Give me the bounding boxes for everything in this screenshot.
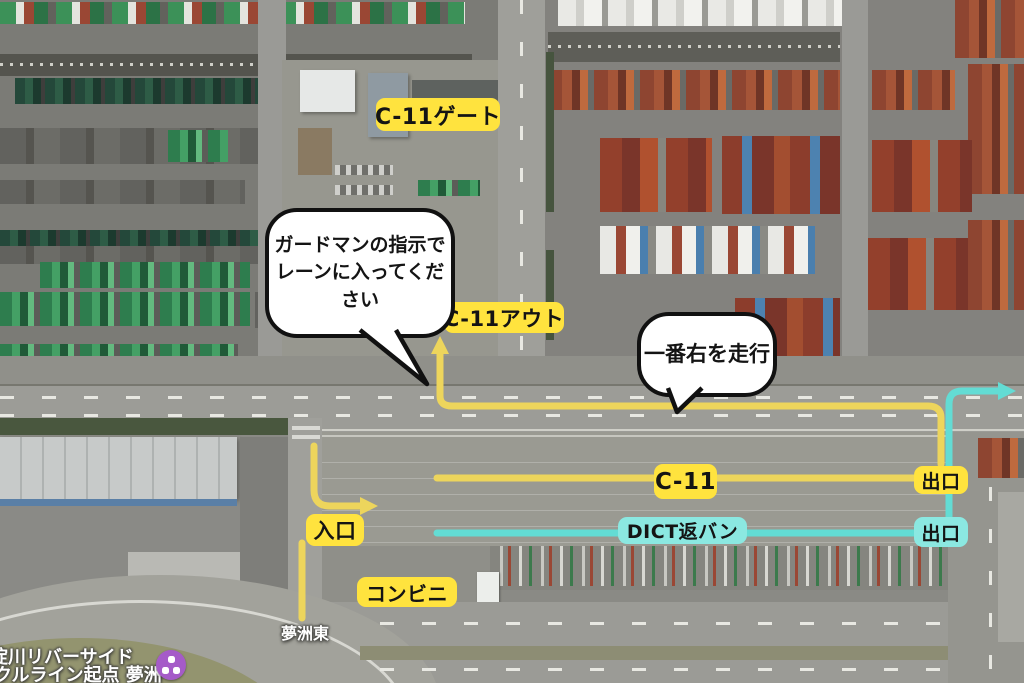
label-entrance: 入口: [306, 514, 364, 546]
label-dict-lane: DICT返バン: [618, 517, 747, 544]
parked-trailers: [500, 546, 950, 586]
warehouse-roof: [0, 437, 237, 499]
road-marking: [989, 445, 992, 675]
parked-trucks: [978, 438, 1024, 478]
label-convenience-store: コンビニ: [357, 577, 457, 607]
container-row: [968, 220, 1024, 310]
building: [300, 70, 355, 112]
road-marking: [380, 622, 1024, 625]
container-row: [168, 130, 228, 162]
parked-lanes: [998, 492, 1024, 642]
container-row: [0, 2, 465, 24]
trucks: [418, 180, 480, 196]
container-row: [955, 0, 1024, 58]
satellite-map-canvas[interactable]: C-11ゲート C-11アウト 入口 コンビニ C-11 出口 DICT返バン …: [0, 0, 1024, 683]
container-row: [0, 180, 245, 204]
shoulder-strip: [0, 356, 1024, 384]
right-container-yard: [545, 0, 1024, 385]
hedge: [0, 418, 318, 435]
trees: [546, 52, 554, 212]
warehouse-eave: [0, 499, 237, 506]
bubble-right-lane-text: 一番右を走行: [644, 339, 770, 369]
label-c11-lane: C-11: [654, 464, 717, 499]
building: [298, 128, 332, 175]
bubble-right-lane: 一番右を走行: [637, 312, 777, 397]
container-row: [968, 64, 1024, 194]
road-marking: [380, 668, 1024, 671]
label-exit-yellow: 出口: [914, 466, 968, 494]
parked-cars: [335, 165, 393, 175]
poi-dot: [162, 667, 169, 674]
container-row: [0, 230, 280, 246]
container-row: [548, 70, 840, 110]
poi-dot: [168, 656, 175, 663]
label-exit-cyan: 出口: [914, 517, 968, 547]
crosswalk: [292, 426, 320, 444]
container-stack: [722, 136, 840, 214]
truck-apron: [240, 437, 288, 602]
container-row: [0, 292, 250, 326]
container-row: [0, 128, 282, 164]
place-label-yumeshima-east: 夢洲東: [281, 620, 329, 644]
bubble-guard-line1: ガードマンの指示で: [274, 232, 445, 260]
road-marking: [0, 396, 1024, 399]
road-marking: [0, 414, 1024, 417]
parked-cars: [335, 185, 393, 195]
yard-road: [842, 0, 868, 385]
bubble-guard-instruction: ガードマンの指示で レーンに入ってください: [265, 208, 455, 338]
container-row: [558, 0, 858, 26]
bubble-guard-line2: レーンに入ってください: [269, 259, 451, 314]
container-stack: [872, 140, 972, 212]
container-row: [600, 226, 815, 274]
road-edge: [0, 384, 1024, 386]
lot-fence: [318, 435, 948, 437]
label-c11-gate: C-11ゲート: [376, 98, 500, 131]
container-row: [872, 70, 955, 110]
place-label-cycleline: クルライン起点 夢洲: [0, 661, 162, 683]
label-c11-out: C-11アウト: [444, 302, 564, 333]
trailer-marks: [548, 45, 840, 48]
container-row: [40, 262, 250, 288]
poi-dot: [173, 667, 180, 674]
median-strip: [360, 646, 1024, 660]
container-stack: [600, 138, 712, 212]
poi-marker-icon[interactable]: [156, 650, 186, 680]
